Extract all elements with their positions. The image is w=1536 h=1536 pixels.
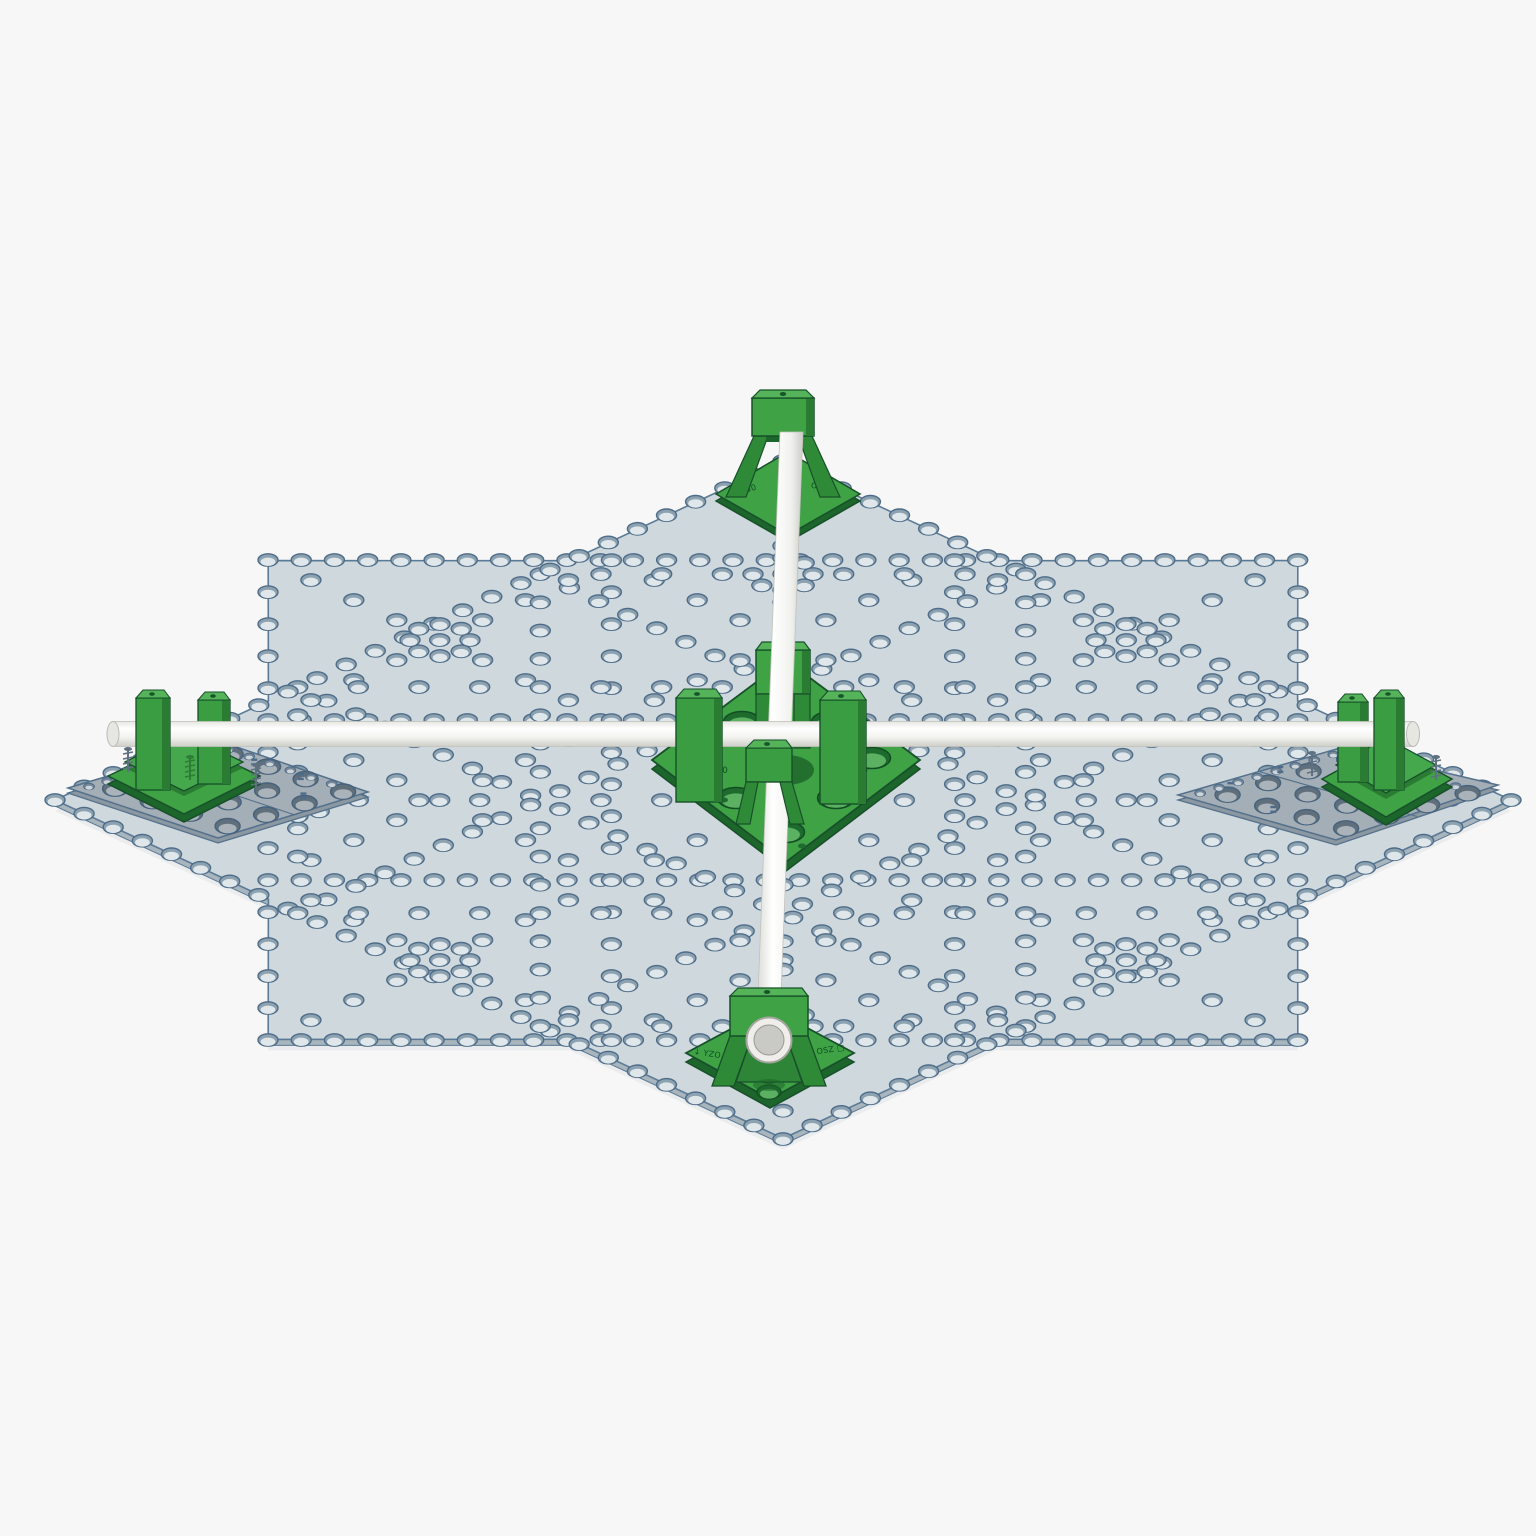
rod-end-cap-right <box>1407 722 1420 747</box>
center-front-tower-pin-hole <box>764 742 770 746</box>
right-rod-mount-front-post[interactable] <box>1374 690 1404 790</box>
bottom-block-pin-hole <box>764 990 770 994</box>
left-front-post-pin-hole <box>149 692 155 696</box>
cad-canvas[interactable]: □ 250 OZA ↑ □ 250 □ 250 <box>0 0 1536 1536</box>
center-front-tower-head <box>746 748 792 782</box>
right-rear-post-pin-hole <box>1349 696 1355 700</box>
center-rear-tower-side <box>802 650 810 694</box>
center-left-tower-pin-hole <box>694 692 700 696</box>
center-left-tower-side <box>714 698 722 802</box>
right-front-post-side <box>1396 698 1404 790</box>
left-rear-post-pin-hole <box>210 694 216 698</box>
center-right-tower-side <box>858 700 866 804</box>
cad-viewport[interactable]: □ 250 OZA ↑ □ 250 □ 250 <box>0 0 1536 1536</box>
top-mount-head <box>752 398 814 436</box>
left-front-post-side <box>162 698 170 790</box>
bottom-rod-end-face <box>754 1025 784 1055</box>
bottom-block-arch-shadow <box>753 1079 785 1091</box>
top-mount-pin-hole <box>780 392 786 396</box>
center-right-tower-pin-hole <box>838 694 844 698</box>
rod-end-cap-left <box>107 722 119 747</box>
left-rod-mount-front-post[interactable] <box>136 690 170 790</box>
right-front-post-pin-hole <box>1385 692 1391 696</box>
top-mount-head-side <box>806 398 814 436</box>
